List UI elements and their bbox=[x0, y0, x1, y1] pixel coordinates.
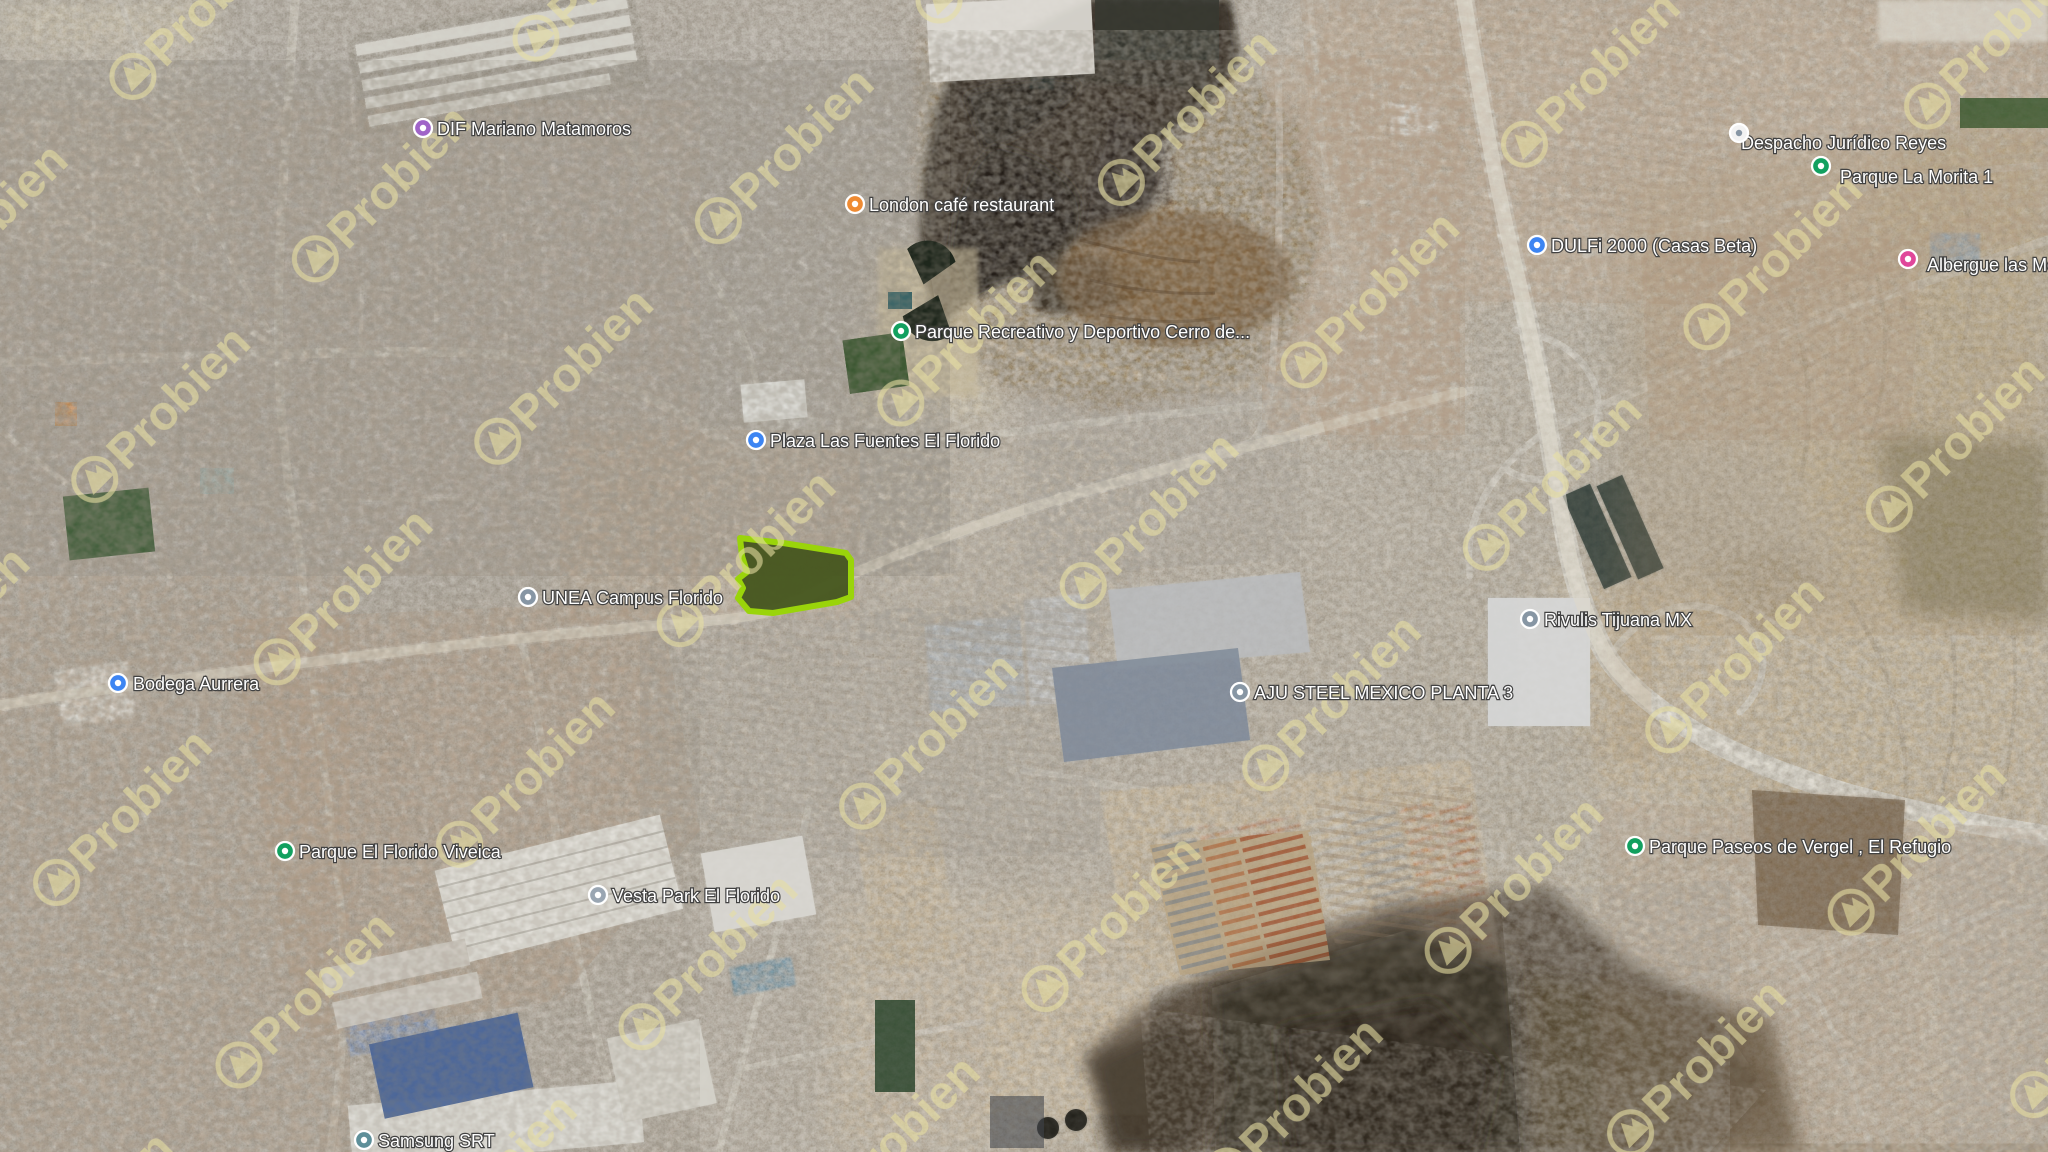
svg-text:Bodega Aurrera: Bodega Aurrera bbox=[133, 674, 260, 694]
svg-text:Parque El Florido Viveica: Parque El Florido Viveica bbox=[299, 842, 502, 862]
svg-text:UNEA Campus Florido: UNEA Campus Florido bbox=[542, 588, 723, 608]
svg-text:Parque Recreativo y Deportivo: Parque Recreativo y Deportivo Cerro de..… bbox=[915, 322, 1250, 342]
svg-text:Parque La Morita 1: Parque La Morita 1 bbox=[1840, 167, 1993, 187]
svg-text:Parque Paseos de Vergel , El R: Parque Paseos de Vergel , El Refugio bbox=[1649, 837, 1951, 857]
svg-text:Vesta Park El Florido: Vesta Park El Florido bbox=[612, 886, 780, 906]
svg-text:Samsung SRT: Samsung SRT bbox=[378, 1131, 495, 1151]
svg-text:Despacho Jurídico Reyes: Despacho Jurídico Reyes bbox=[1741, 133, 1946, 153]
svg-text:AJU STEEL MEXICO PLANTA 3: AJU STEEL MEXICO PLANTA 3 bbox=[1254, 683, 1513, 703]
svg-text:DULFi 2000 (Casas Beta): DULFi 2000 (Casas Beta) bbox=[1551, 236, 1757, 256]
svg-text:DIF Mariano Matamoros: DIF Mariano Matamoros bbox=[437, 119, 631, 139]
svg-text:Plaza Las Fuentes El Florido: Plaza Las Fuentes El Florido bbox=[770, 431, 1000, 451]
svg-text:Albergue las Mo: Albergue las Mo bbox=[1927, 255, 2048, 275]
svg-text:Rivulis Tijuana MX: Rivulis Tijuana MX bbox=[1544, 610, 1692, 630]
svg-text:London café restaurant: London café restaurant bbox=[869, 195, 1054, 215]
